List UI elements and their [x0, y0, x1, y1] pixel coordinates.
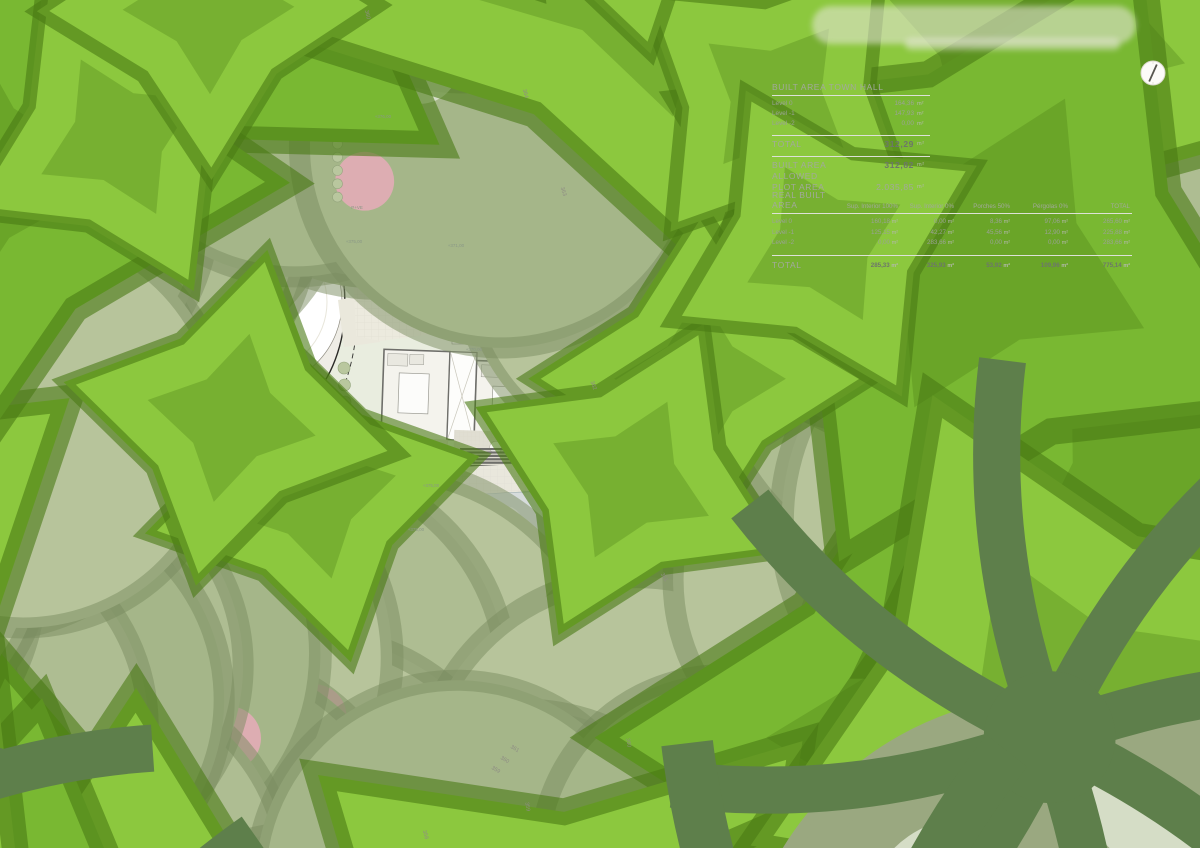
hedge-ball-icon	[333, 192, 343, 202]
total-value: 312,29	[862, 139, 914, 150]
real-built-rows: Level 0160,18 m²0,00 m²8,36 m²97,06 m²26…	[772, 214, 1132, 256]
plan-label: +375,00	[346, 239, 363, 244]
real-built-total-row: TOTAL 285,33 m²325,93 m²53,92 m²109,96 m…	[772, 256, 1132, 272]
hedge-ball-icon	[333, 166, 343, 176]
real-built-area-table: REAL BUILT AREA Sup. Interior 100%Sup. I…	[772, 190, 1132, 271]
total-unit: m²	[914, 139, 930, 150]
column-header: TOTAL	[1068, 203, 1130, 210]
total-label: TOTAL	[772, 261, 840, 272]
table-row: Level -20,00 m²283,66 m²0,00 m²0,00 m²28…	[772, 238, 1132, 249]
table-row: Level 0160,18 m²0,00 m²8,36 m²97,06 m²26…	[772, 217, 1132, 228]
total-value: 325,93 m²	[898, 261, 954, 272]
plan-label: +376,00	[375, 114, 392, 119]
town-hall-allowed-section: BUILT AREA ALLOWED 312,82 m² PLOT AREA 2…	[772, 156, 930, 193]
north-arrow-icon	[1138, 58, 1168, 88]
table-row: Level -20,00m²	[772, 119, 930, 129]
table-title: BUILT AREA TOWN HALL	[772, 82, 930, 96]
plan-label: +370,00	[466, 347, 483, 352]
table-row: Level 0164,36m²	[772, 99, 930, 109]
column-header: Sup. Interior 0%	[898, 203, 954, 210]
column-header: Porches 50%	[954, 203, 1010, 210]
table-title: REAL BUILT AREA	[772, 190, 840, 210]
column-header: Sup. Interior 100%	[840, 203, 898, 210]
site-plan-drawing: 360364363362361361360359360359358+376,00…	[0, 0, 1200, 848]
total-value: 775,14 m²	[1068, 261, 1130, 272]
town-hall-rows: Level 0164,36m²Level -1147,93m²Level -20…	[772, 96, 930, 129]
total-value: 53,92 m²	[954, 261, 1010, 272]
redacted-logo-area	[905, 38, 1120, 50]
allowed-value: 312,82	[862, 160, 914, 182]
built-area-town-hall-table: BUILT AREA TOWN HALL Level 0164,36m²Leve…	[772, 82, 930, 193]
hedge-ball-icon	[338, 362, 350, 374]
plan-label: +371,00	[448, 243, 465, 248]
plan-label: +375,00	[423, 483, 440, 488]
column-header: Pérgolas 0%	[1010, 203, 1068, 210]
plan-sheet: { "tables": { "town_hall": { "title": "B…	[0, 0, 1200, 848]
table-row: Level -1125,15 m²42,27 m²45,56 m²12,90 m…	[772, 228, 1132, 239]
total-label: TOTAL	[772, 139, 862, 150]
hedge-ball-icon	[333, 179, 343, 189]
vegetation-layer	[0, 0, 1200, 848]
table-row: Level -1147,93m²	[772, 109, 930, 119]
allowed-label: BUILT AREA ALLOWED	[772, 160, 862, 182]
total-value: 285,33 m²	[840, 261, 898, 272]
plan-label: +375,00	[408, 527, 425, 532]
total-value: 109,96 m²	[1010, 261, 1068, 272]
real-built-header: REAL BUILT AREA Sup. Interior 100%Sup. I…	[772, 190, 1132, 214]
plan-label: P+VE	[351, 205, 363, 210]
town-hall-total-row: TOTAL 312,29 m²	[772, 135, 930, 150]
